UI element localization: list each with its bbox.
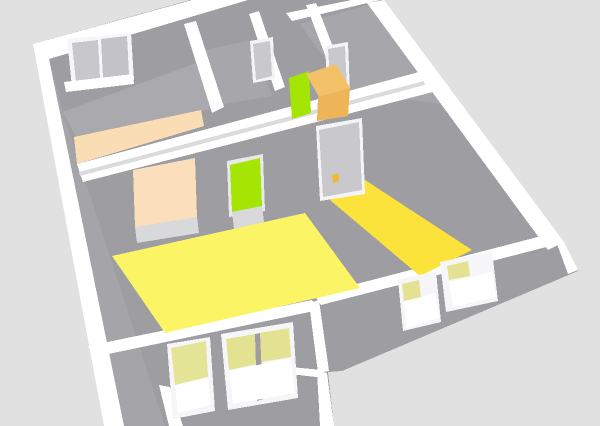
green-furniture-panel (289, 71, 311, 119)
closet-door (253, 41, 272, 80)
peach-doorway-opening (133, 158, 197, 227)
green-door (230, 158, 262, 212)
front-window-glass-left (226, 334, 257, 370)
front-window-glass-right (259, 328, 291, 362)
bedroom-door (319, 122, 362, 197)
floor-plan-scene (0, 0, 600, 426)
floor-plan-3d-view[interactable] (0, 0, 600, 426)
back-window-pane-left (72, 40, 100, 82)
back-window-pane-right (101, 36, 129, 78)
